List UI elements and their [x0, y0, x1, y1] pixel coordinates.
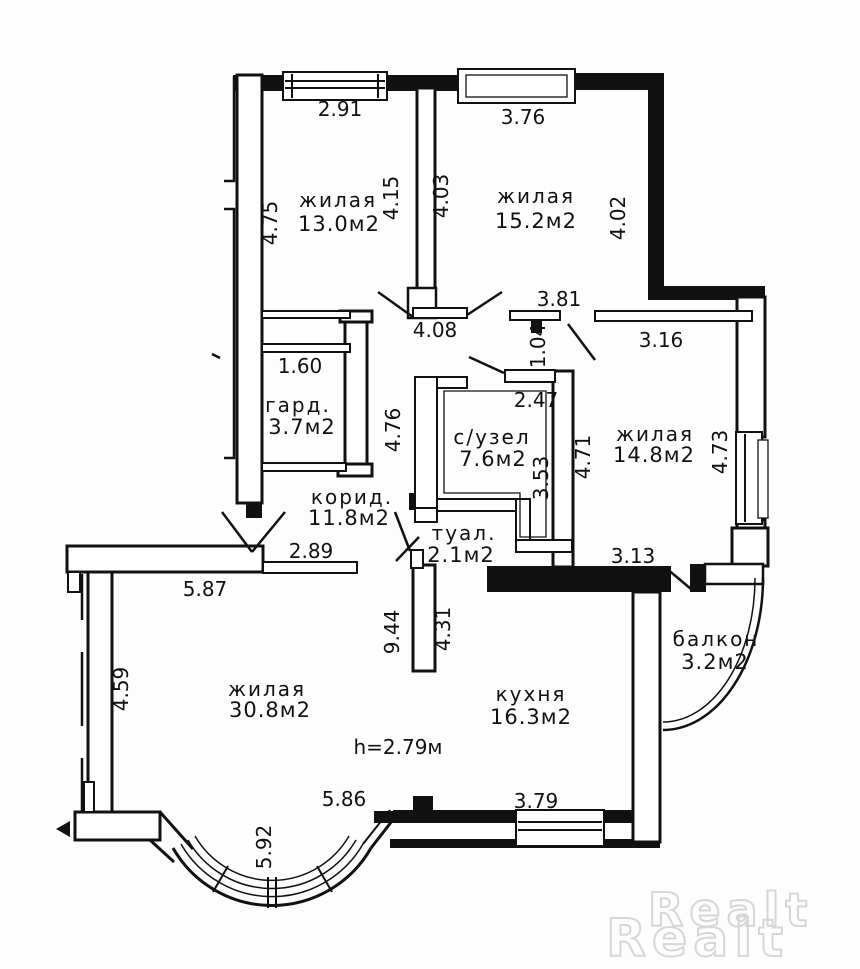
floor-plan-drawing: жилая13.0м2жилая15.2м2гард.3.7м2с/узел7.… — [0, 0, 860, 969]
dimension-label-9: 3.16 — [639, 328, 684, 352]
ceiling-height-label: h=2.79м — [353, 735, 442, 759]
dimension-label-20: 4.31 — [431, 607, 455, 652]
dimension-label-12: 4.76 — [381, 408, 405, 453]
room-label-kitchen: кухня — [496, 682, 567, 706]
room-area-corridor: 11.8м2 — [308, 506, 390, 530]
room-area-toilet: 2.1м2 — [427, 543, 495, 567]
room-area-balcony: 3.2м2 — [681, 650, 749, 674]
room-area-living-2: 15.2м2 — [495, 209, 577, 233]
dimension-label-14: 4.71 — [571, 435, 595, 480]
room-label-living-1: жилая — [299, 188, 377, 212]
dimension-label-8: 1.04 — [526, 324, 550, 369]
room-area-kitchen: 16.3м2 — [490, 705, 572, 729]
bay-window — [150, 810, 416, 908]
dimension-label-4: 4.03 — [429, 174, 453, 219]
room-label-balcony: балкон — [673, 627, 760, 651]
floor-plan-canvas: жилая13.0м2жилая15.2м2гард.3.7м2с/узел7.… — [0, 0, 860, 969]
room-area-wardrobe: 3.7м2 — [268, 415, 336, 439]
dimension-label-17: 5.87 — [183, 577, 228, 601]
dimension-label-2: 4.75 — [258, 201, 282, 246]
dimension-label-3: 4.15 — [379, 176, 403, 221]
dimension-label-6: 4.08 — [413, 318, 458, 342]
dimension-label-10: 1.60 — [278, 354, 323, 378]
watermark: Realt Realt — [606, 883, 813, 969]
dimension-label-16: 2.89 — [289, 539, 334, 563]
dimension-label-21: 4.59 — [109, 667, 133, 712]
wall-arrow-tick — [56, 821, 70, 837]
dimension-label-19: 9.44 — [380, 610, 404, 655]
room-area-living-4: 30.8м2 — [229, 698, 311, 722]
dimension-label-1: 3.76 — [501, 105, 546, 129]
room-area-living-3: 14.8м2 — [613, 443, 695, 467]
dimension-label-0: 2.91 — [318, 97, 363, 121]
dimension-label-15: 4.73 — [708, 430, 732, 475]
dimension-label-24: 5.92 — [252, 825, 276, 870]
dimension-label-11: 2.47 — [514, 388, 559, 412]
room-label-wardrobe: гард. — [265, 393, 331, 417]
dimension-label-7: 3.81 — [537, 287, 582, 311]
dimension-label-5: 4.02 — [606, 196, 630, 241]
window-kitchen — [516, 810, 604, 846]
room-label-bathroom: с/узел — [453, 425, 530, 449]
room-label-living-2: жилая — [497, 184, 575, 208]
dimension-label-18: 3.13 — [611, 544, 656, 568]
dimension-label-23: 3.79 — [514, 789, 559, 813]
watermark-text: Realt — [606, 909, 789, 969]
dimension-label-22: 5.86 — [322, 787, 367, 811]
room-area-bathroom: 7.6м2 — [459, 447, 527, 471]
room-area-living-1: 13.0м2 — [298, 212, 380, 236]
window-room1 — [283, 72, 387, 100]
room-label-toilet: туал. — [432, 521, 497, 545]
dimension-label-13: 3.53 — [529, 456, 553, 501]
